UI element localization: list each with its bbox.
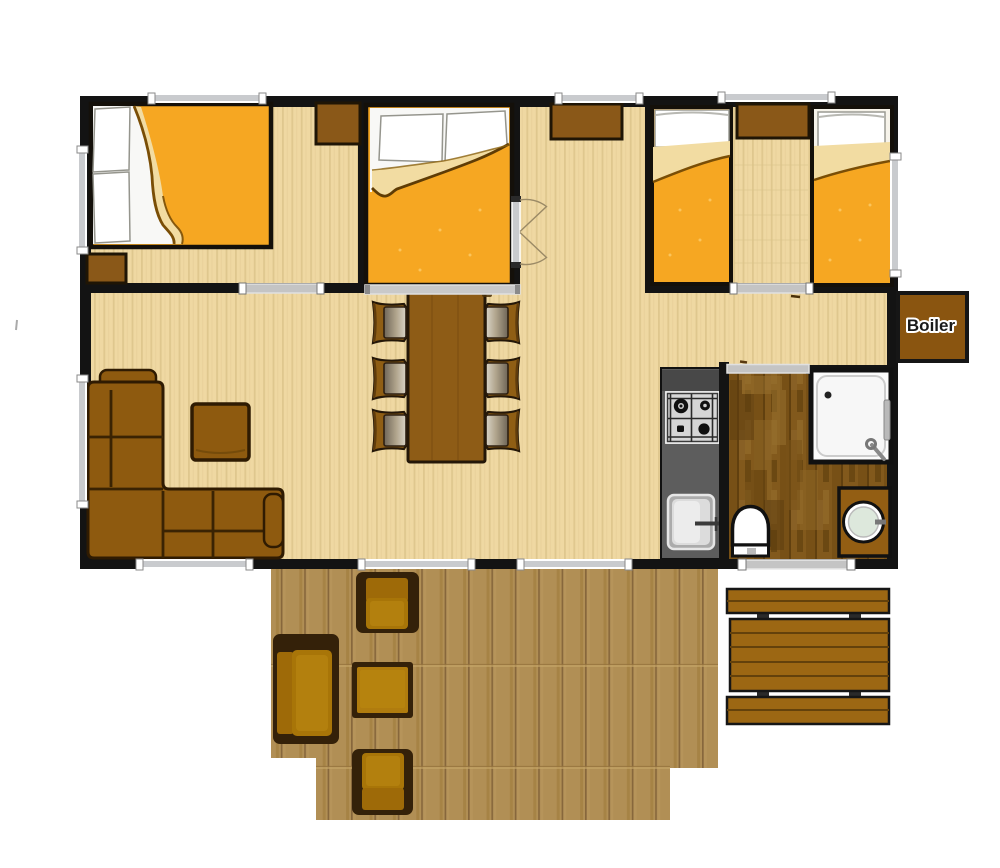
svg-text:Boiler: Boiler <box>907 316 956 335</box>
